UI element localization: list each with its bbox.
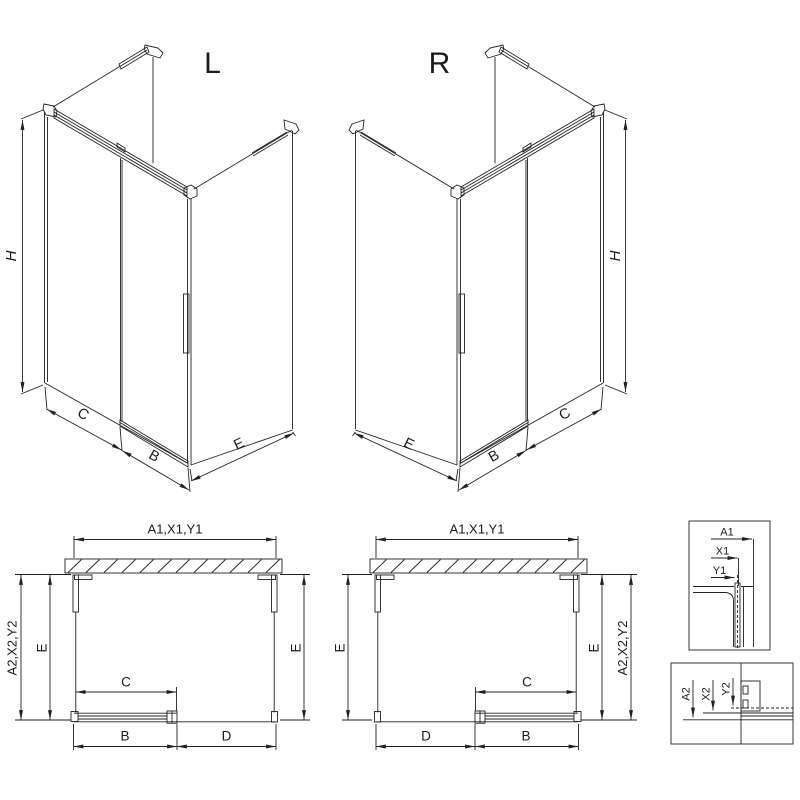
return-wall-cap (284, 120, 299, 134)
c-label-iso-left: C (74, 405, 91, 424)
e-label-iso-right: E (401, 435, 417, 454)
wall-profile-plan (693, 587, 754, 648)
detail-bottom-rail (671, 663, 793, 744)
e-label-iso-left: E (231, 435, 247, 454)
bottom-rail-lines (683, 713, 793, 720)
b-label-iso-left: B (146, 447, 162, 466)
e-label-left-plan-left: E (35, 643, 50, 652)
e-label-left-plan-right: E (289, 643, 304, 652)
door-track-lines (74, 713, 276, 722)
track-end-cap (272, 712, 278, 723)
door-guide-profile (741, 681, 760, 711)
support-strut-line (53, 50, 147, 107)
drawing-sheet: L R H H C B E C B E A1,X1,Y1 A2,X2,Y2 E … (0, 0, 800, 800)
hatch-middle-wall (373, 560, 585, 573)
b-label-mid-plan: B (521, 729, 530, 744)
hatch-left-wall (68, 560, 280, 573)
a2x2y2-label-left-plan: A2,X2,Y2 (5, 621, 20, 676)
a1x1y1-label-left-plan: A1,X1,Y1 (148, 522, 203, 537)
door-hanger (117, 143, 125, 152)
a2x2y2-label-mid-plan: A2,X2,Y2 (615, 621, 630, 676)
iso-view-left-line-art (21, 45, 299, 492)
h-extension-lines (21, 110, 43, 394)
a2-label-detail: A2 (681, 687, 693, 700)
plan-view-middle-line-art (342, 536, 637, 750)
a1x1y1-label-mid-plan: A1,X1,Y1 (450, 522, 505, 537)
d-label-left-plan: D (222, 729, 232, 744)
iso-view-right-line-art (349, 45, 627, 492)
x1-label-detail: X1 (716, 546, 729, 558)
c-label-iso-right: C (557, 405, 574, 424)
y2-label-detail: Y2 (721, 682, 733, 695)
x2-label-detail: X2 (701, 687, 713, 700)
return-top-edge (194, 130, 292, 189)
front-bottom-edge (45, 383, 188, 464)
wall-hatching (68, 560, 585, 573)
d-label-mid-plan: D (421, 729, 431, 744)
e-label-mid-plan-right: E (587, 643, 602, 652)
right-wall-profile (272, 575, 278, 612)
b-label-left-plan: B (120, 729, 129, 744)
variant-label-right: R (429, 47, 452, 80)
right-wall-flange (258, 575, 276, 580)
left-wall-flange (75, 575, 93, 580)
h-label-left: H (3, 250, 20, 261)
e-label-mid-plan-left: E (333, 643, 348, 652)
diagram-canvas: L R H H C B E C B E A1,X1,Y1 A2,X2,Y2 E … (0, 0, 800, 800)
detail-top-frame (689, 521, 770, 650)
cb-extension-lines (45, 387, 190, 492)
c-label-mid-plan: C (522, 675, 532, 690)
h-label-right: H (607, 250, 624, 261)
door-handle (184, 294, 190, 353)
a1-label-detail: A1 (720, 527, 733, 539)
detail-top-profile (689, 521, 770, 650)
variant-label-left: L (204, 47, 222, 80)
c-label-left-plan: C (121, 675, 131, 690)
left-glass-edge (45, 112, 48, 383)
detail-bottom-frame (671, 663, 793, 744)
labels-layer: L R H H C B E C B E A1,X1,Y1 A2,X2,Y2 E … (3, 47, 734, 744)
left-wall-profile (73, 575, 79, 612)
y1-label-detail: Y1 (713, 565, 726, 577)
b-label-iso-right: B (486, 447, 502, 466)
